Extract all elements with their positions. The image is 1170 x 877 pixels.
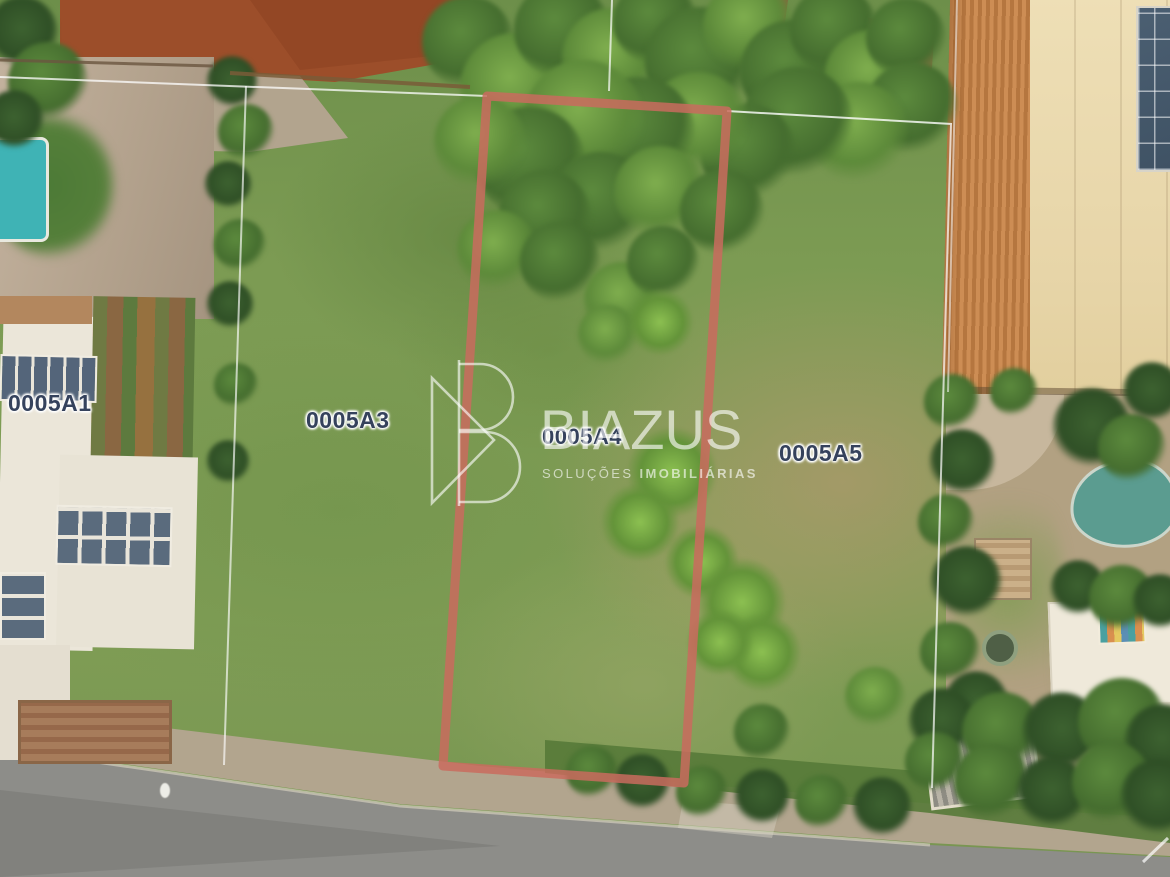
boundary-line [932, 125, 951, 788]
rail-fence [230, 73, 470, 87]
parcel-label-0005A5: 0005A5 [779, 440, 863, 467]
watermark-tagline: SOLUÇÕESIMOBILIÁRIAS [542, 466, 758, 481]
parcel-label-0005A1: 0005A1 [8, 390, 92, 417]
parcel-label-0005A3: 0005A3 [306, 407, 390, 434]
boundary-line [727, 111, 952, 124]
watermark-tagline-bold: IMOBILIÁRIAS [639, 466, 757, 481]
watermark-tagline-light: SOLUÇÕES [542, 466, 633, 481]
watermark: BIAZUS SOLUÇÕESIMOBILIÁRIAS [428, 358, 768, 508]
road-marking [1143, 838, 1168, 862]
wall-top [0, 60, 213, 66]
watermark-brand: BIAZUS [540, 402, 742, 458]
biazus-logo-icon [428, 360, 532, 506]
boundary-line [224, 86, 246, 765]
boundary-line [609, 0, 612, 91]
aerial-photo: 0005A1 0005A3 0005A4 0005A5 BIAZUS SOLUÇ… [0, 0, 1170, 877]
boundary-line [0, 77, 487, 96]
